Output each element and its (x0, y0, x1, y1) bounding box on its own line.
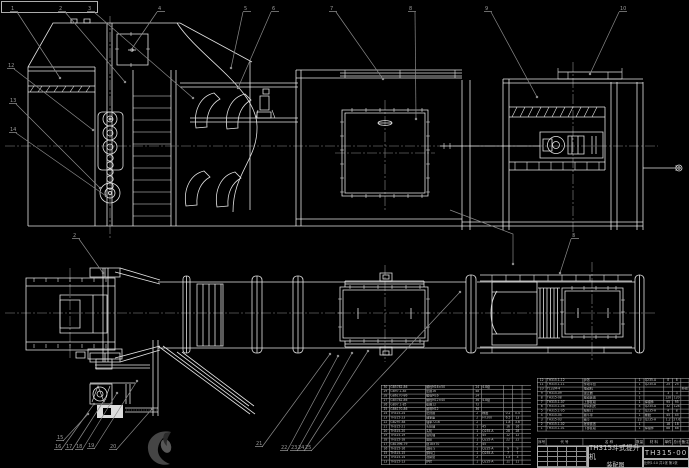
callout-leader (491, 12, 537, 97)
callout-number: 9 (485, 6, 488, 12)
plan-head-assembly (466, 275, 644, 353)
leader-dot (124, 81, 126, 83)
plan-flange-joint (90, 268, 160, 362)
leader-dot (104, 398, 106, 400)
leader-dot (237, 87, 239, 89)
bom-row: 13 TH315-13 护栏 1 Q235-A 11 11 (381, 460, 531, 464)
callout-leader (590, 12, 619, 74)
callout-leader (560, 239, 571, 273)
bucket (185, 171, 210, 206)
callout-leader (262, 354, 330, 447)
inspection-door-plan (338, 273, 430, 355)
tensioner-bolt (256, 89, 275, 118)
bucket (195, 93, 220, 128)
callout-number: 14 (10, 127, 16, 133)
callout-number: 16 (55, 444, 61, 450)
leader-dot (415, 118, 417, 120)
callout-number: 17 (66, 444, 72, 450)
callout-number: 24 (298, 445, 304, 451)
leader-dot (559, 272, 561, 274)
callout-leader (14, 69, 93, 130)
leader-dot (192, 97, 194, 99)
pull-rod (643, 165, 682, 171)
callout-leader (17, 12, 60, 78)
plan-casing-rings (183, 276, 303, 353)
leader-dot (136, 380, 138, 382)
top-view (28, 19, 682, 230)
product-name: TH315斗式提升机 (589, 444, 642, 462)
head-door-plan (560, 286, 625, 339)
bom-right: 12 TH315.1-12 护罩 1 Q235-A 8 8 11 TH315.1… (537, 378, 689, 431)
callout-number: 25 (305, 445, 311, 451)
callout-number: 21 (256, 441, 262, 447)
plan-boot-box (26, 278, 115, 350)
drawing-title: TH315斗式提升机 装配图 (588, 446, 643, 468)
leader-dot (382, 78, 384, 80)
callout-leader (131, 12, 157, 50)
leader-dot (130, 49, 132, 51)
callout-leader (287, 356, 338, 451)
bom-left: 30 GB5782-86 螺栓M16×50 24 4.8级 29 GB97.1-… (381, 385, 531, 465)
boot-door (115, 32, 150, 67)
bucket (216, 172, 241, 207)
leader-line (450, 210, 513, 264)
leader-dot (116, 392, 118, 394)
gearbox (97, 405, 123, 418)
callout-number: 1 (11, 6, 14, 12)
discharge-chute (110, 23, 298, 212)
leader-dot (512, 263, 514, 265)
leader-dot (230, 67, 232, 69)
callout-number: 2 (73, 233, 76, 239)
callout-number: 18 (76, 444, 82, 450)
callout-leader (238, 12, 271, 88)
bom-row: 1 TH315.1-01 下部区段 1 焊接件 88 88 (537, 427, 689, 431)
leader-dot (329, 353, 331, 355)
callout-number: 5 (244, 6, 247, 12)
drive-unit (540, 132, 603, 158)
leader-dot (589, 73, 591, 75)
coupling-spring (90, 384, 112, 404)
leader-dot (99, 187, 101, 189)
leader-dot (367, 350, 369, 352)
leader-dot (151, 408, 153, 410)
callout-number: 8 (409, 6, 412, 12)
callout-number: 3 (88, 6, 91, 12)
callout-leader (16, 133, 106, 196)
leader-dot (459, 291, 461, 293)
leader-dot (105, 195, 107, 197)
callout-leader (231, 12, 243, 68)
callout-number: 10 (620, 6, 626, 12)
leader-dot (93, 403, 95, 405)
head-section (440, 68, 682, 230)
plan-view (26, 268, 644, 362)
callout-number: 3 (572, 233, 575, 239)
bom-table-right: 12 TH315.1-12 护罩 1 Q235-A 8 8 11 TH315.1… (537, 378, 689, 438)
signature-grid (537, 446, 588, 468)
callout-number: 12 (8, 63, 14, 69)
callout-number: 7 (330, 6, 333, 12)
callout-number: 6 (272, 6, 275, 12)
callout-leader (336, 12, 383, 79)
takeup-sprockets (98, 112, 123, 203)
middle-casing (296, 70, 462, 226)
frame-corner (2, 2, 98, 13)
callout-number: 23 (291, 445, 297, 451)
leader-dot (92, 129, 94, 131)
drawing-number: TH315-00 (643, 446, 689, 459)
callout-number: 19 (88, 443, 94, 449)
bom-table-left: 30 GB5782-86 螺栓M16×50 24 4.8级 29 GB97.1-… (381, 385, 531, 468)
callout-number: 4 (158, 6, 161, 12)
leader-dot (351, 352, 353, 354)
callout-number: 2 (59, 6, 62, 12)
bucket-chain-guide (133, 70, 176, 226)
sheet-info: 比例1:10 共1张 第1张 (643, 459, 689, 468)
leader-dot (536, 96, 538, 98)
leader-dot (337, 355, 339, 357)
doc-type: 装配图 (606, 462, 624, 468)
cad-canvas: 1234567891012131423151617181920212223242… (0, 0, 689, 468)
callout-leader (415, 12, 416, 119)
leader-dot (59, 77, 61, 79)
callout-number: 13 (10, 98, 16, 104)
watermark-logo (148, 431, 173, 464)
callout-number: 15 (57, 435, 63, 441)
callout-number: 20 (110, 444, 116, 450)
leader-dot (102, 272, 104, 274)
callout-number: 22 (281, 445, 287, 451)
